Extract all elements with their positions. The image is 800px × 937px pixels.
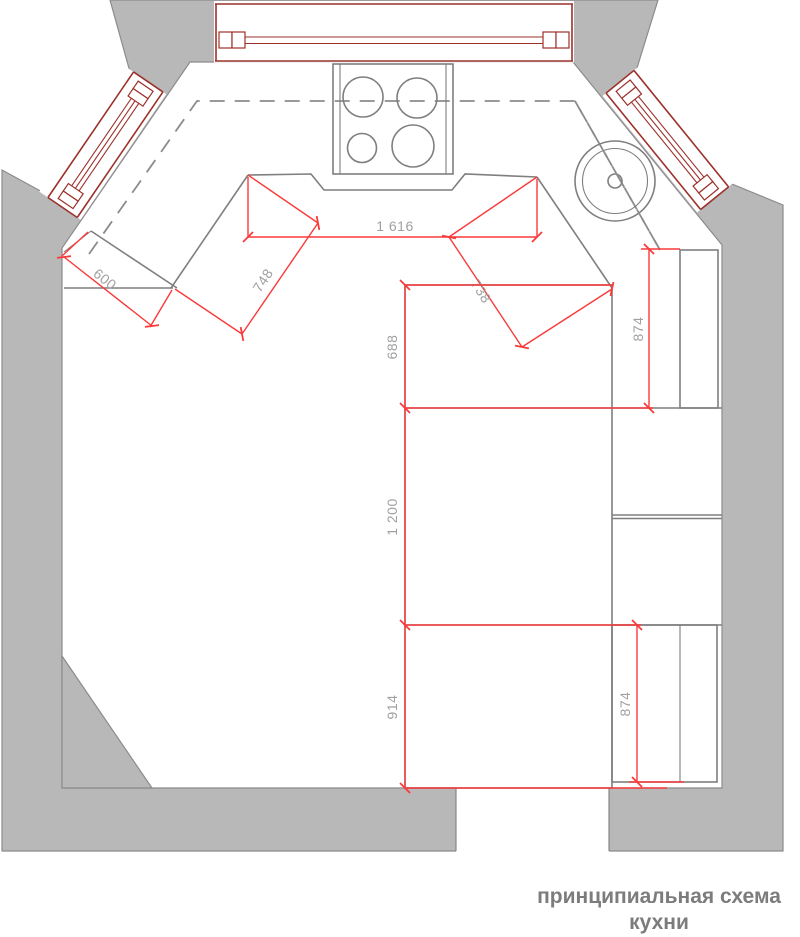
table — [405, 285, 722, 788]
cabinet-upper-right — [680, 250, 718, 408]
counter-front-edge — [248, 174, 537, 190]
dim-label-874-upper: 874 — [630, 317, 646, 342]
dimension-left-depth: 600 — [62, 232, 172, 327]
window-top — [214, 1, 574, 63]
dim-label-1200: 1 200 — [384, 498, 400, 536]
right-corner-cabinet — [537, 177, 612, 288]
dim-label-600: 600 — [90, 265, 119, 293]
sink-outer — [575, 141, 655, 221]
floor-plan-svg: 1 616 748 738 600 688 — [0, 0, 800, 937]
dimension-left-corner: 748 — [175, 175, 318, 334]
burner-large-3 — [392, 125, 434, 167]
dimensions: 1 616 748 738 600 688 — [62, 175, 684, 788]
dim-label-874-lower: 874 — [617, 692, 633, 717]
sink-inner — [583, 149, 648, 214]
burner-large-2 — [397, 78, 437, 118]
door-opening — [456, 787, 609, 853]
table-outline — [405, 285, 612, 788]
window-top-glass — [214, 1, 574, 63]
plan-title: принципиальная схема кухни — [537, 885, 781, 934]
stove — [333, 64, 453, 174]
plan-title-line2: кухни — [629, 911, 689, 934]
dim-label-738: 738 — [468, 276, 495, 306]
dimension-cabinet-upper: 874 — [630, 249, 680, 408]
window-right — [603, 65, 735, 212]
sink — [575, 141, 655, 221]
corner-chamfer — [62, 656, 152, 788]
dim-label-688: 688 — [384, 335, 400, 360]
burner-small — [348, 134, 377, 163]
dimension-right-corner: 738 — [449, 177, 612, 347]
kitchen-floor-plan: 1 616 748 738 600 688 — [0, 0, 800, 937]
dim-label-914: 914 — [384, 695, 400, 720]
dimension-cabinet-lower: 874 — [617, 625, 684, 782]
plan-title-line1: принципиальная схема — [537, 885, 781, 908]
burner-large-1 — [343, 77, 383, 117]
dim-label-1616: 1 616 — [376, 218, 414, 234]
window-left — [39, 66, 166, 220]
